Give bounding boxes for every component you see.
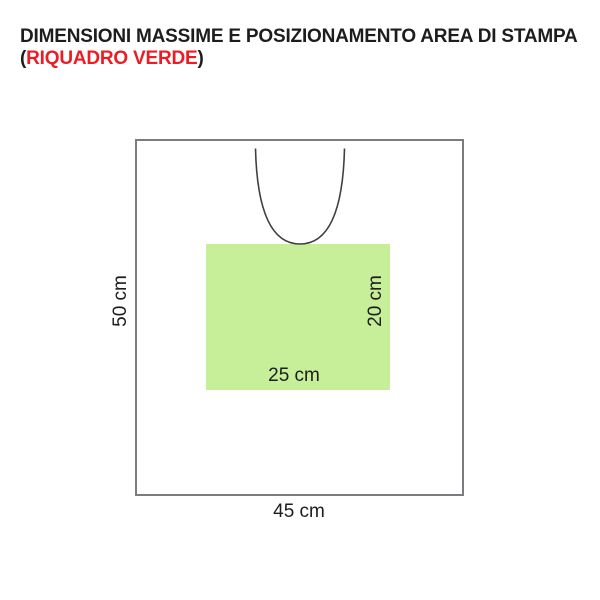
garment-height-label: 50 cm	[110, 275, 132, 327]
print-area-height-label: 20 cm	[365, 275, 387, 327]
title-paren-close: )	[198, 48, 204, 69]
garment-width-label: 45 cm	[273, 501, 325, 523]
print-area-diagram-page: DIMENSIONI MASSIME E POSIZIONAMENTO AREA…	[0, 0, 600, 600]
page-title: DIMENSIONI MASSIME E POSIZIONAMENTO AREA…	[20, 26, 578, 69]
title-line1: DIMENSIONI MASSIME E POSIZIONAMENTO AREA…	[20, 26, 578, 47]
print-area-width-label: 25 cm	[268, 365, 320, 387]
title-highlight-riquadro-verde: RIQUADRO VERDE	[26, 48, 197, 69]
title-line2: (RIQUADRO VERDE)	[20, 48, 204, 69]
